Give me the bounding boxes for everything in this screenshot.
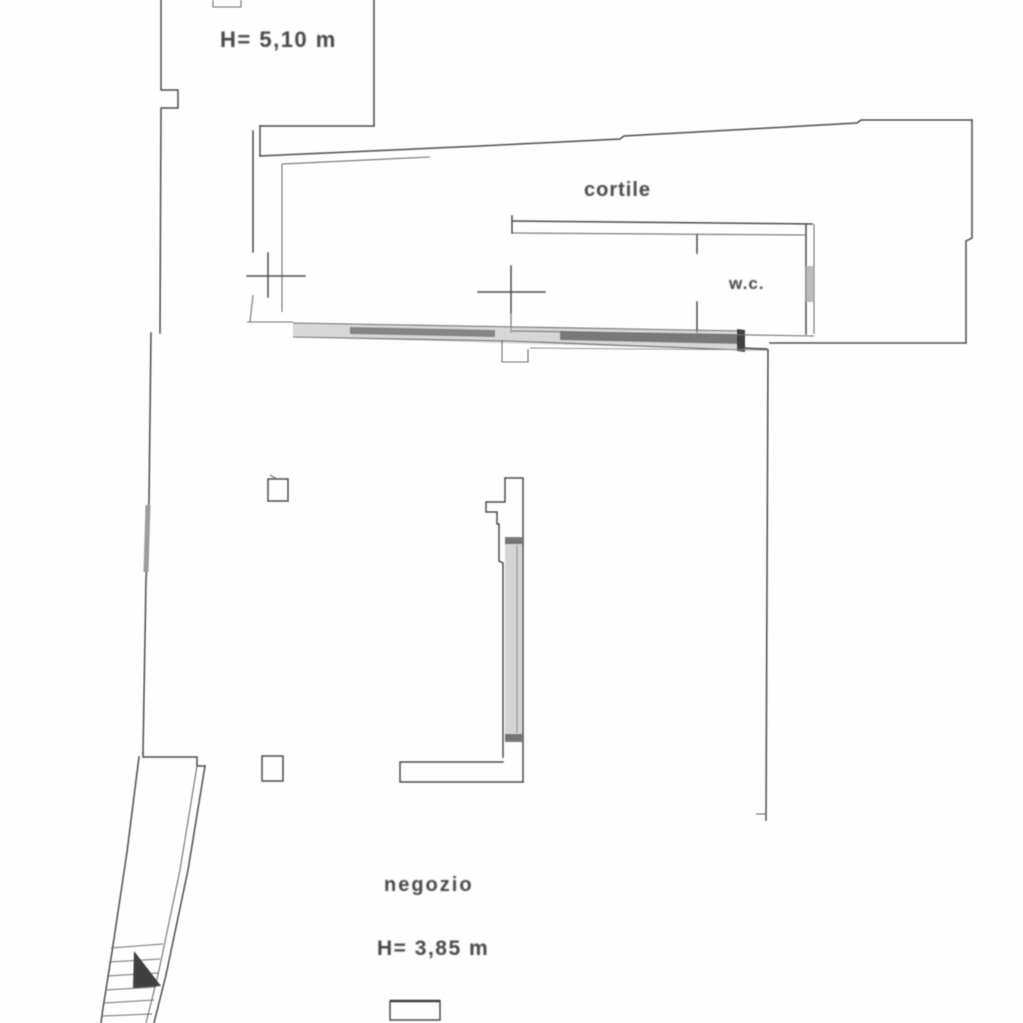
cortile-boundary-walls <box>253 120 972 343</box>
column-upper <box>268 475 288 501</box>
negozio-label: negozio <box>384 874 474 896</box>
left-wall-door-shade <box>146 505 148 572</box>
column-lower <box>262 756 283 781</box>
wc-window-shade <box>806 266 814 302</box>
bottom-fixture <box>390 1001 440 1020</box>
negozio-walls <box>143 333 768 820</box>
central-partition-wall <box>400 478 523 782</box>
staircase <box>101 753 205 1023</box>
floorplan-drawing: H= 5,10 m cortile w.c. negozio H= 3,85 m <box>0 0 1023 1023</box>
negozio-height-label: H= 3,85 m <box>377 937 489 960</box>
shop-top-wall-band <box>247 322 814 362</box>
cortile-label: cortile <box>584 179 651 201</box>
window-symbol-middle <box>478 266 545 333</box>
scanned-floorplan-page: H= 5,10 m cortile w.c. negozio H= 3,85 m <box>0 0 1023 1023</box>
wc-label: w.c. <box>728 274 765 293</box>
wc-room-walls <box>512 216 814 334</box>
stair-direction-wedge <box>133 951 161 988</box>
upper-room-height-label: H= 5,10 m <box>220 27 337 52</box>
window-symbol-left <box>247 253 305 322</box>
